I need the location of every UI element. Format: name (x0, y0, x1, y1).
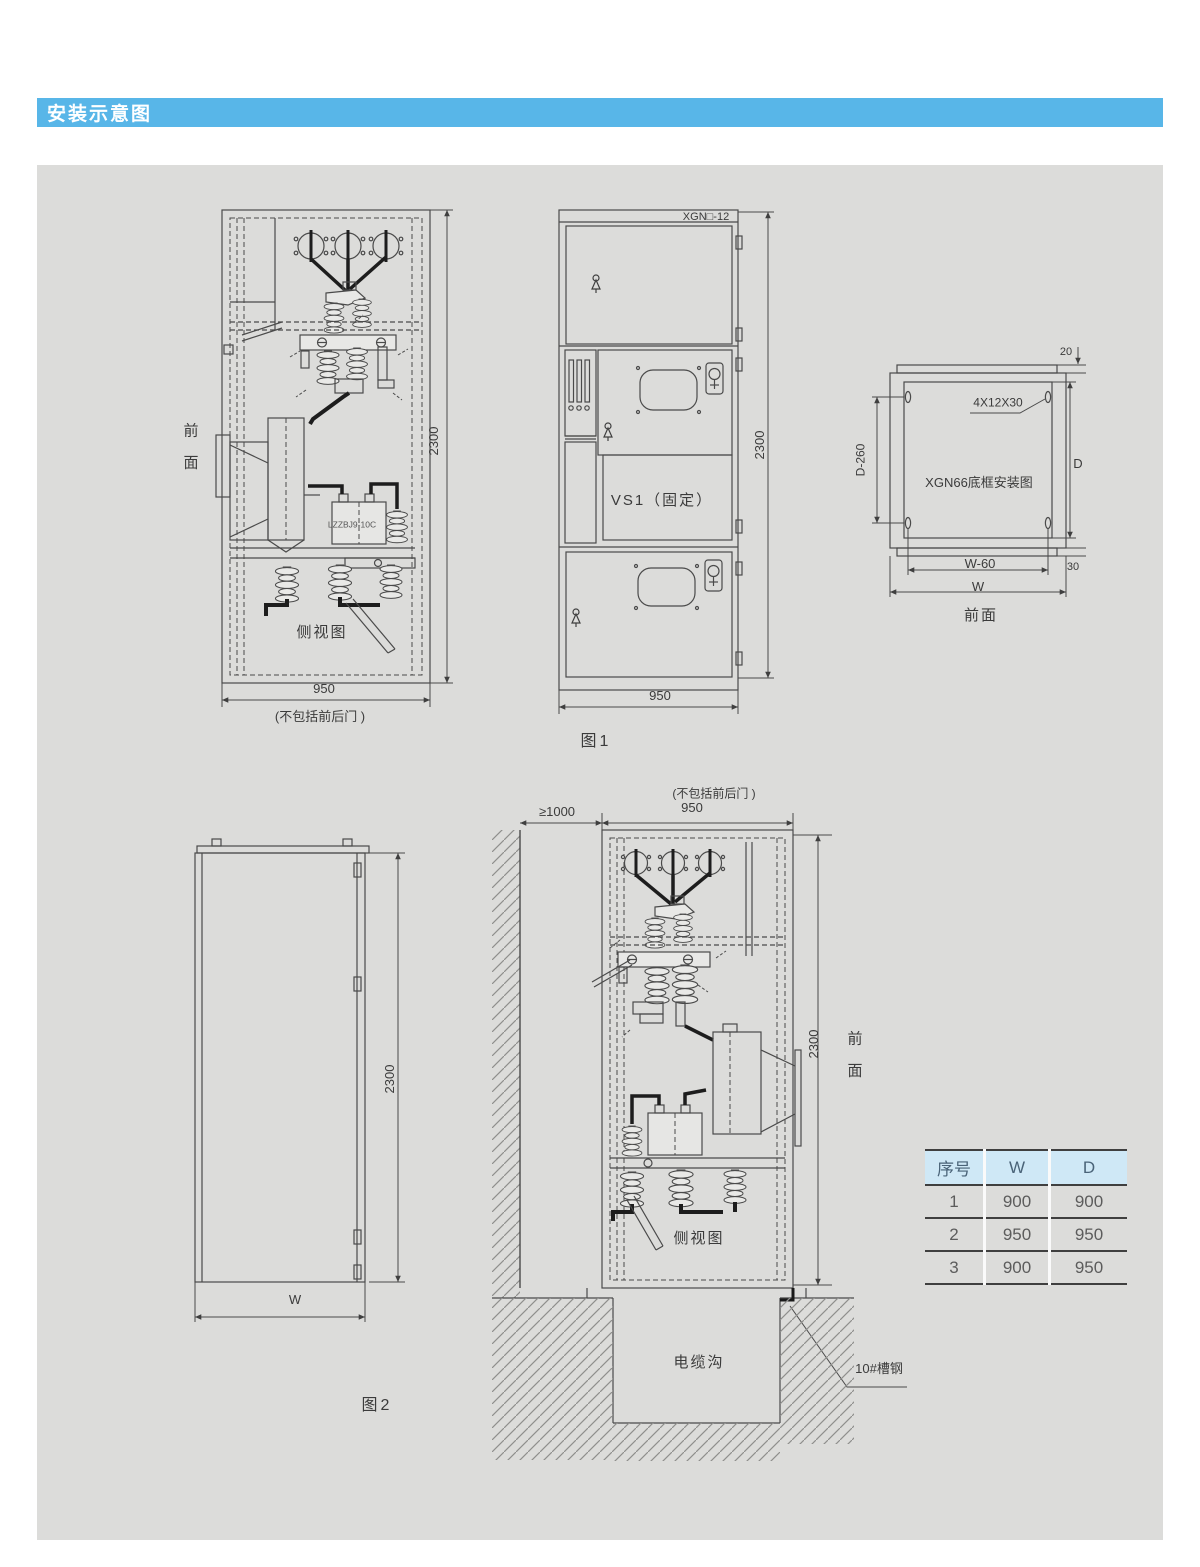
table-header-d: D (1051, 1149, 1127, 1186)
table-cell: 900 (986, 1252, 1048, 1285)
table-cell: 900 (986, 1186, 1048, 1219)
section-header-bar: 安装示意图 (37, 98, 1163, 127)
busbar-v (311, 257, 386, 291)
lamp-icon (706, 363, 723, 394)
fig1-front-breaker-label: VS1（固定） (611, 493, 713, 510)
busbar-v (636, 873, 710, 904)
lamp-icon (705, 560, 722, 591)
table-header-seq: 序号 (925, 1149, 983, 1186)
fig1-side-height-dim: 2300 (427, 427, 441, 456)
frame-depth-span-dim: D-260 (854, 444, 867, 477)
frame-width-span-dim: W-60 (965, 557, 996, 571)
table-cell: 950 (1051, 1252, 1127, 1285)
table-cell: 950 (986, 1219, 1048, 1252)
table-cell: 2 (925, 1219, 983, 1252)
frame-bottom-gap-dim: 30 (1067, 561, 1079, 573)
fig1-side-view-label: 侧视图 (296, 625, 347, 642)
fig2-mid-width-note: (不包括前后门 ) (672, 787, 755, 800)
inspection-window (638, 568, 695, 606)
fig2-left-height-dim: 2300 (383, 1065, 397, 1094)
fig2-mid-wall-gap-dim: ≥1000 (539, 805, 575, 819)
fig2-mid-trench-label: 电缆沟 (673, 1355, 724, 1372)
table-header-w: W (986, 1149, 1048, 1186)
dimension-lines (559, 212, 774, 714)
fig2-left-width-dim: W (289, 1293, 301, 1307)
dimension-table: 序号 W D 1 900 900 2 950 950 3 900 950 (925, 1149, 1127, 1285)
fig2-mid-view-label: 侧视图 (673, 1231, 724, 1248)
inspection-window (640, 370, 697, 410)
table-cell: 950 (1051, 1219, 1127, 1252)
frame-front-label: 前面 (964, 608, 998, 625)
fig1-front-height-dim: 2300 (753, 431, 767, 460)
fig2-mid-channel-label: 10#槽钢 (855, 1362, 903, 1376)
lock-icon (572, 609, 580, 627)
fig1-front-width-dim: 950 (649, 689, 671, 703)
mounting-holes (905, 392, 1050, 529)
frame-hole-spec: 4X12X30 (973, 396, 1022, 409)
fig2-side-view-drawing (480, 780, 930, 1487)
ground-hatch (780, 1298, 854, 1444)
fig1-caption: 图1 (581, 733, 612, 751)
fig2-cabinet-outline-drawing (185, 830, 415, 1325)
fig2-mid-width-dim: 950 (681, 801, 703, 815)
table-cell: 3 (925, 1252, 983, 1285)
louver-panel (565, 350, 596, 436)
page: 安装示意图 (0, 0, 1200, 1567)
fig1-side-ct-label: LZZBJ9-10C (328, 520, 376, 529)
dimension-lines (195, 853, 405, 1322)
ground-hatch (613, 1423, 780, 1461)
fig2-caption: 图2 (362, 1397, 393, 1415)
table-cell: 1 (925, 1186, 983, 1219)
fig2-mid-front-label: 前 面 (847, 1024, 864, 1087)
frame-width-dim: W (972, 580, 984, 594)
fig1-front-model-label: XGN□-12 (683, 211, 729, 223)
lock-icon (592, 275, 600, 293)
ground-hatch (492, 1298, 613, 1460)
table-cell: 900 (1051, 1186, 1127, 1219)
fig1-side-width-note: (不包括前后门 ) (275, 710, 365, 724)
fig2-mid-height-dim: 2300 (807, 1030, 821, 1059)
frame-top-gap-dim: 20 (1060, 346, 1072, 358)
lock-icon (604, 423, 612, 441)
fig1-front-view-drawing (540, 200, 785, 760)
bushing-circles (294, 230, 403, 262)
section-title: 安装示意图 (37, 99, 152, 126)
frame-depth-dim: D (1073, 457, 1082, 471)
fig1-side-front-label: 前 面 (183, 416, 200, 479)
frame-title: XGN66底框安装图 (925, 476, 1033, 490)
wall-hatch (492, 830, 520, 1298)
fig1-side-width-dim: 950 (313, 682, 335, 696)
